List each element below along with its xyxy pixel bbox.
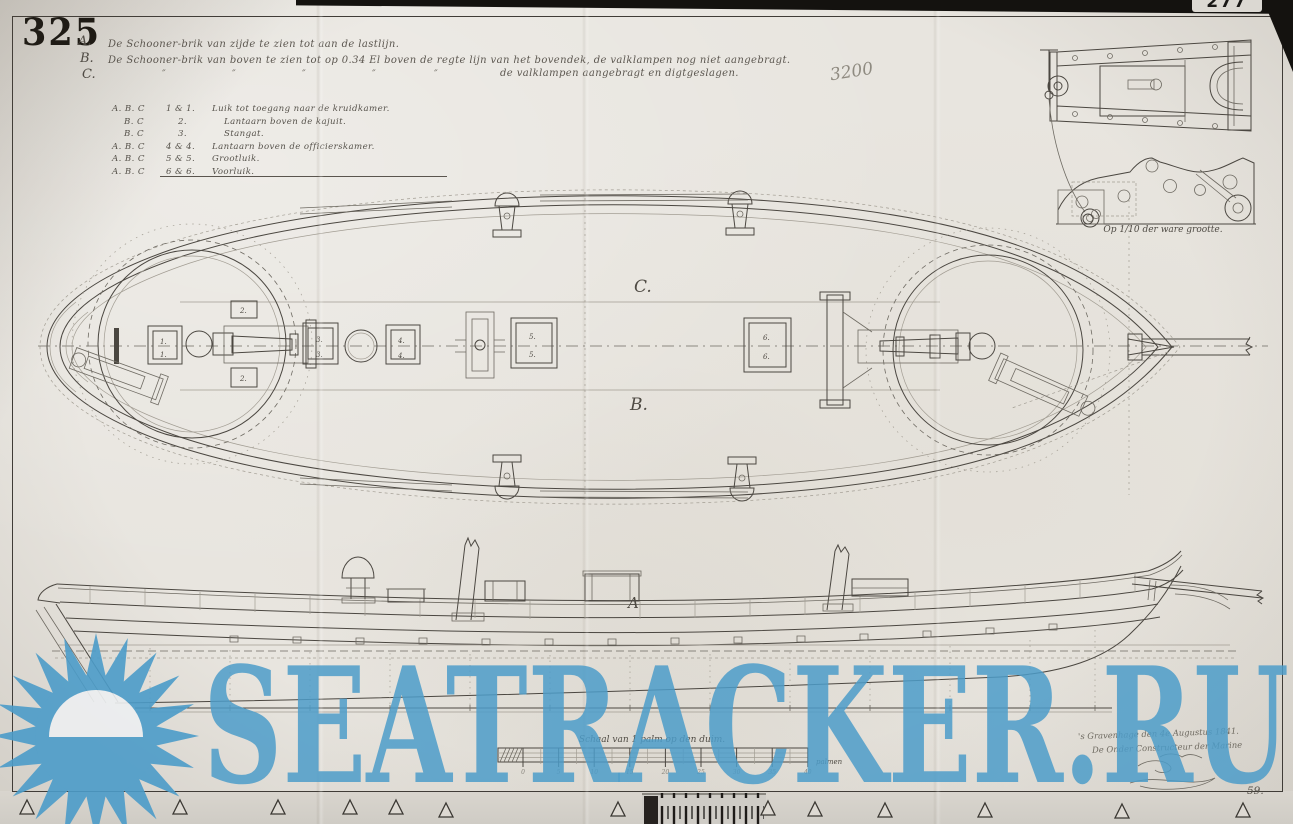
ditto-mark: ″ — [232, 69, 236, 80]
legend-row: B. C 3. Stangat. — [112, 128, 472, 141]
detail-inset-drawing: Op 1/10 der ware grootte. — [1040, 40, 1256, 235]
mounting-triangle-marks — [20, 800, 1250, 818]
mast-partners-pumps — [455, 312, 505, 378]
detail-inset-caption: Op 1/10 der ware grootte. — [1103, 225, 1222, 235]
title-line-C-text: de valklampen aangebragt en digtgeslagen… — [500, 68, 739, 79]
ditto-mark: ″ — [434, 69, 438, 80]
svg-text:35: 35 — [768, 769, 776, 776]
carriage-side-view — [1056, 158, 1256, 224]
stern-counter — [38, 584, 60, 603]
plan-label-C: C. — [634, 277, 652, 297]
legend-letters: A. B. C — [112, 153, 160, 166]
foremast-stub — [823, 545, 853, 611]
legend-row: A. B. C 5 & 5. Grootluik. — [112, 153, 472, 166]
svg-text:15: 15 — [626, 769, 634, 776]
legend-text: Luik tot toegang naar de kruidkamer. — [212, 103, 472, 116]
rail-chock — [493, 193, 521, 237]
title-line-B-text: De Schooner-brik van boven te zien tot o… — [108, 55, 790, 66]
legend-text: Lantaarn boven de kajuit. — [224, 116, 472, 129]
training-lever — [1040, 50, 1099, 227]
legend-numbers: 1 & 1. — [160, 103, 212, 116]
aft-gun-turntable — [72, 224, 312, 464]
fore-stowed-gun — [989, 353, 1101, 425]
hatch-4: 4. 4. — [386, 325, 420, 364]
station-lines — [150, 630, 1095, 707]
hatch-3-mark: 3. — [316, 336, 323, 344]
legend-row: A. B. C 4 & 4. Lantaarn boven de officie… — [112, 141, 472, 154]
legend-letters: B. C — [112, 116, 172, 129]
svg-text:30: 30 — [733, 769, 741, 776]
bowsprit-side — [1132, 577, 1263, 609]
archive-tab-number: 277 — [1192, 0, 1262, 12]
scanned-ship-plan-sheet: 1. 1. 2. 2. 3. 3. — [0, 0, 1293, 824]
footer-sheet-number: 59. — [1247, 785, 1264, 797]
skylight-2-lower: 2. — [231, 368, 257, 387]
legend-letters: A. B. C — [112, 141, 160, 154]
side-elevation-drawing: A — [36, 538, 1263, 712]
legend-text: Grootluik. — [212, 153, 472, 166]
legend-numbers: 4 & 4. — [160, 141, 212, 154]
ditto-mark: ″ — [162, 69, 166, 80]
hatch-6-mark: 6. — [763, 334, 770, 342]
plan-view-drawing: 1. 1. 2. 2. 3. 3. — [38, 190, 1268, 504]
ditto-mark: ″ — [372, 69, 376, 80]
title-line-A-text: De Schooner-brik van zijde te zien tot a… — [108, 39, 399, 50]
legend-row: B. C 2. Lantaarn boven de kajuit. — [112, 116, 472, 129]
title-line-C-label: C. — [82, 67, 96, 82]
svg-text:20: 20 — [661, 769, 670, 776]
legend-numbers: 2. — [172, 116, 224, 129]
hatch-3: 3. 3. — [303, 323, 338, 364]
hatch-4-mark: 4. — [397, 352, 405, 360]
rail-chock — [726, 191, 754, 235]
fore-pivot-gun — [820, 292, 995, 408]
title-line-A-label: A. — [78, 34, 92, 49]
skylight-2-mark: 2. — [239, 307, 247, 315]
hatch-4-mark: 4. — [397, 337, 405, 345]
scale-unit-label: palmen — [816, 758, 843, 766]
legend-text: Stangat. — [224, 128, 472, 141]
legend-letters: B. C — [112, 128, 172, 141]
fore-gun-turntable — [866, 228, 1110, 472]
hatch-6-voorluik: 6. 6. — [744, 318, 791, 372]
photo-ruler — [642, 793, 766, 824]
plan-label-B: B. — [629, 395, 648, 415]
hatch-3-mark: 3. — [316, 351, 323, 359]
legend-list: A. B. C 1 & 1. Luik tot toegang naar de … — [112, 103, 472, 179]
hatch-6-mark: 6. — [763, 353, 770, 361]
legend-numbers: 5 & 5. — [160, 153, 212, 166]
ditto-mark: ″ — [302, 69, 306, 80]
svg-text:0: 0 — [521, 769, 525, 776]
svg-text:5: 5 — [557, 769, 561, 776]
scale-bar-caption: Schaal van 1 palm op den duim. — [579, 735, 725, 745]
rudder-head — [114, 328, 119, 364]
side-label-A: A — [626, 594, 639, 612]
skylight-2-mark: 2. — [239, 375, 247, 383]
title-line-B-label: B. — [80, 51, 94, 66]
legend-row: A. B. C 1 & 1. Luik tot toegang naar de … — [112, 103, 472, 116]
hatch-5-grootluik: 5. 5. — [511, 318, 557, 368]
rail-chock — [493, 455, 521, 499]
hatch-1-mark: 1. — [160, 351, 167, 359]
scale-tick-labels: 0 5 10 15 20 25 30 35 40 — [521, 769, 812, 776]
mainmast-stub — [452, 538, 484, 621]
hatch-1-mark: 1. — [160, 338, 167, 346]
signature-flourish — [1130, 754, 1215, 789]
hatch-1: 1. 1. — [148, 326, 182, 364]
legend-underline — [160, 176, 447, 177]
rudder — [36, 607, 106, 703]
hatch-5-mark: 5. — [529, 333, 536, 341]
archive-tab: 277 — [1192, 0, 1262, 12]
legend-text: Lantaarn boven de officierskamer. — [212, 141, 472, 154]
legend-letters: A. B. C — [112, 103, 160, 116]
hatch-5-mark: 5. — [529, 351, 536, 359]
scale-bar: Schaal van 1 palm op den duim. 0 5 10 15… — [498, 735, 843, 776]
legend-numbers: 3. — [172, 128, 224, 141]
aft-pivot-gun — [186, 320, 316, 368]
svg-text:10: 10 — [590, 769, 598, 776]
skylight-2-upper: 2. — [231, 301, 257, 318]
svg-text:25: 25 — [696, 769, 705, 776]
legend-letters: A. B. C — [112, 166, 160, 179]
svg-text:40: 40 — [803, 769, 812, 776]
